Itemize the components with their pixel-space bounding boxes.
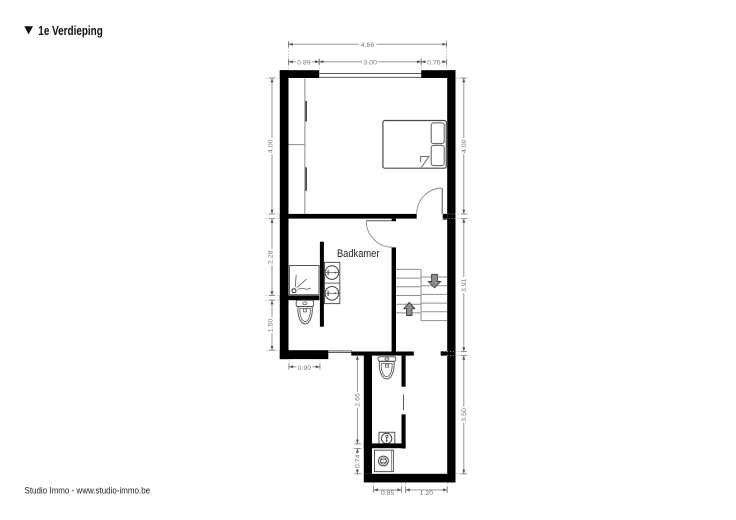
svg-text:3.00: 3.00 [363, 59, 377, 66]
svg-text:2.65: 2.65 [354, 393, 361, 407]
svg-text:0.74: 0.74 [354, 454, 361, 468]
svg-text:3.91: 3.91 [461, 278, 468, 292]
svg-text:0.89: 0.89 [297, 59, 311, 66]
svg-text:4.66: 4.66 [361, 42, 375, 49]
svg-text:0.85: 0.85 [381, 490, 395, 497]
svg-text:3.50: 3.50 [461, 408, 468, 422]
svg-text:1.50: 1.50 [268, 318, 275, 332]
svg-text:1e Verdieping: 1e Verdieping [38, 23, 103, 38]
svg-text:0.90: 0.90 [298, 365, 312, 372]
svg-text:4.00: 4.00 [461, 139, 468, 153]
svg-text:Studio Immo - www.studio-immo.: Studio Immo - www.studio-immo.be [25, 486, 151, 497]
svg-text:2.28: 2.28 [268, 250, 275, 264]
svg-text:4.00: 4.00 [268, 139, 275, 153]
svg-text:0.76: 0.76 [427, 59, 441, 66]
svg-text:1.20: 1.20 [420, 490, 434, 497]
svg-text:Badkamer: Badkamer [337, 248, 380, 260]
